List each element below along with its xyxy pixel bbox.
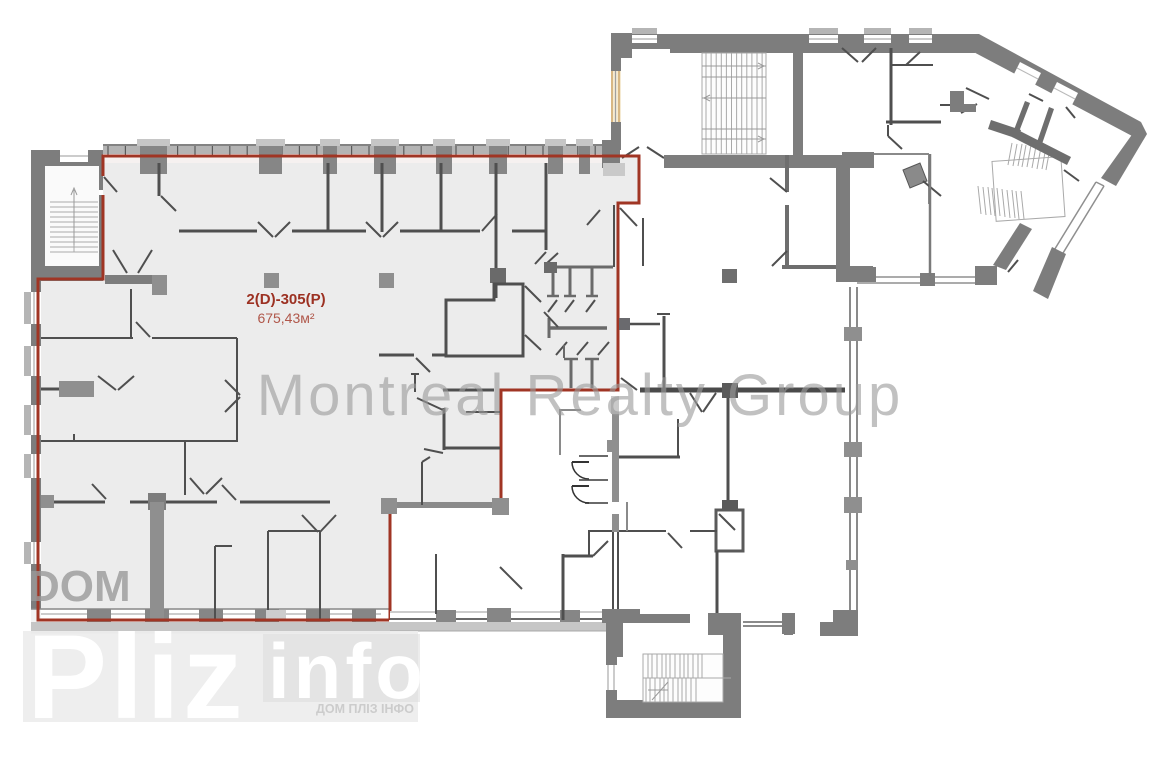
svg-text:675,43м²: 675,43м²	[257, 310, 314, 326]
svg-text:2(D)-305(P): 2(D)-305(P)	[246, 291, 325, 308]
svg-text:Montreal Realty Group: Montreal Realty Group	[257, 363, 903, 428]
svg-text:ДОМ ПЛІЗ ІНФО: ДОМ ПЛІЗ ІНФО	[316, 702, 414, 716]
svg-text:Pliz: Pliz	[27, 610, 246, 744]
svg-text:DOM: DOM	[28, 562, 131, 611]
